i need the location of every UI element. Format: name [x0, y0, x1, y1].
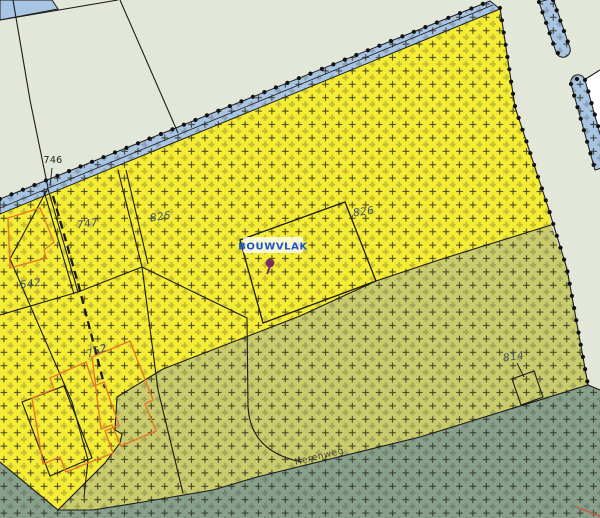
bouwvlak-label: BOUWVLAK: [238, 242, 308, 253]
zoning-map-canvas: 746 747 825 826 542 752 814 Herenweg BOU…: [0, 0, 600, 518]
zoning-map-viewport[interactable]: 746 747 825 826 542 752 814 Herenweg BOU…: [0, 0, 600, 518]
parcel-label-746: 746: [43, 155, 62, 166]
